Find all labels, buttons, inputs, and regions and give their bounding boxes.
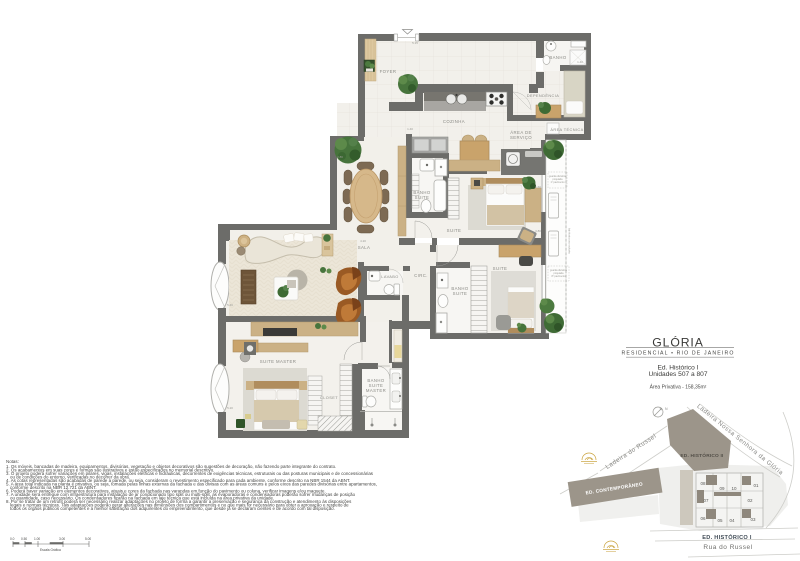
- svg-text:laje técnica uso exclusivo: laje técnica uso exclusivo: [568, 228, 571, 255]
- svg-text:3.80: 3.80: [535, 229, 541, 233]
- svg-text:BANHO: BANHO: [549, 55, 567, 60]
- svg-text:1.60: 1.60: [535, 185, 541, 189]
- svg-text:LAVABO: LAVABO: [381, 274, 398, 279]
- svg-text:SUITE MASTER: SUITE MASTER: [260, 359, 297, 364]
- svg-text:ED. HISTÓRICO I: ED. HISTÓRICO I: [702, 533, 752, 541]
- svg-text:04: 04: [729, 518, 735, 523]
- svg-text:SERVIÇO: SERVIÇO: [510, 135, 532, 140]
- svg-text:05: 05: [717, 518, 723, 523]
- svg-text:SUITE: SUITE: [493, 266, 508, 271]
- svg-text:3.00: 3.00: [59, 537, 65, 541]
- svg-text:CLOSET: CLOSET: [320, 395, 338, 400]
- svg-text:0.0: 0.0: [10, 537, 15, 541]
- svg-text:SUITE: SUITE: [415, 195, 430, 200]
- svg-text:1.00: 1.00: [34, 537, 40, 541]
- svg-text:DEPENDÊNCIA: DEPENDÊNCIA: [527, 93, 560, 98]
- svg-text:5.46: 5.46: [227, 303, 233, 307]
- svg-text:COZINHA: COZINHA: [443, 119, 465, 124]
- svg-text:02: 02: [747, 498, 753, 503]
- svg-text:SUITE: SUITE: [453, 291, 468, 296]
- svg-text:10: 10: [731, 486, 737, 491]
- svg-text:2.86: 2.86: [337, 155, 343, 159]
- svg-text:SUITE: SUITE: [447, 228, 462, 233]
- svg-text:Escala Gráfica: Escala Gráfica: [40, 548, 61, 552]
- svg-text:8º pavimento: 8º pavimento: [552, 274, 567, 278]
- svg-text:CIRC.: CIRC.: [414, 273, 428, 278]
- svg-text:Área Privativa - 158,35m²: Área Privativa - 158,35m²: [650, 384, 707, 391]
- svg-text:5.20: 5.20: [227, 406, 233, 410]
- svg-text:0.50: 0.50: [21, 537, 27, 541]
- svg-text:RESIDENCIAL • RIO DE JANEIRO: RESIDENCIAL • RIO DE JANEIRO: [621, 351, 734, 357]
- svg-text:4.20: 4.20: [360, 239, 366, 243]
- svg-text:07: 07: [703, 498, 709, 503]
- svg-text:ÁREA TÉCNICA: ÁREA TÉCNICA: [550, 127, 583, 132]
- svg-text:03: 03: [750, 517, 756, 522]
- svg-text:1.40: 1.40: [407, 127, 413, 131]
- svg-text:FOYER: FOYER: [380, 69, 397, 74]
- svg-text:todos os órgãos públicos compe: todos os órgãos públicos competentes e a…: [10, 506, 335, 511]
- svg-text:1.40: 1.40: [577, 60, 583, 64]
- svg-text:5.15: 5.15: [412, 41, 418, 45]
- svg-text:Unidades 507 a 807: Unidades 507 a 807: [648, 371, 707, 378]
- svg-text:06: 06: [700, 516, 706, 521]
- svg-text:09: 09: [719, 486, 725, 491]
- svg-text:MASTER: MASTER: [366, 388, 386, 393]
- svg-text:01: 01: [753, 483, 759, 488]
- svg-text:1º pavimento: 1º pavimento: [551, 180, 566, 184]
- svg-text:Rua do Russel: Rua do Russel: [703, 544, 752, 551]
- svg-text:08: 08: [700, 481, 706, 486]
- svg-text:SALA: SALA: [358, 245, 371, 250]
- svg-text:5.00: 5.00: [85, 537, 91, 541]
